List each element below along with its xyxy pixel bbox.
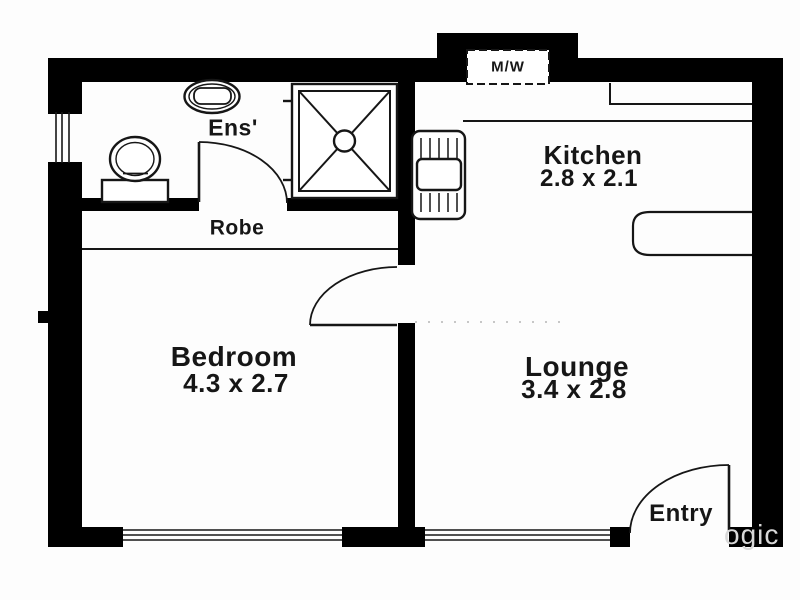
window-lounge bbox=[425, 530, 610, 540]
bedroom-door bbox=[310, 267, 397, 325]
lounge-dimensions: 3.4 x 2.8 bbox=[521, 376, 627, 402]
bedroom-dimensions: 4.3 x 2.7 bbox=[183, 370, 289, 396]
kitchen-bench-seat bbox=[633, 212, 752, 255]
wall-left-upper bbox=[48, 58, 82, 114]
wall-bottom-3 bbox=[610, 527, 630, 547]
kitchen-dimensions: 2.8 x 2.1 bbox=[540, 167, 638, 191]
wall-left-lower bbox=[48, 162, 82, 547]
window-bedroom bbox=[123, 530, 342, 540]
bedroom-label: Bedroom bbox=[171, 343, 297, 371]
ensuite-label: Ens' bbox=[208, 117, 258, 140]
shower-icon bbox=[283, 84, 397, 198]
wall-tick-left bbox=[38, 311, 50, 323]
entry-label: Entry bbox=[649, 502, 713, 526]
kitchen-counter bbox=[610, 83, 752, 104]
basin-icon bbox=[185, 80, 240, 113]
wall-bottom-2 bbox=[342, 527, 425, 547]
wall-right bbox=[752, 58, 783, 547]
floor-plan: Ens' Robe Kitchen 2.8 x 2.1 Bedroom 4.3 … bbox=[0, 0, 800, 600]
kitchen-sink-icon bbox=[412, 131, 465, 219]
toilet-icon bbox=[102, 137, 168, 202]
wall-top bbox=[48, 58, 783, 82]
window-left bbox=[56, 112, 69, 163]
wall-bottom-1 bbox=[48, 527, 123, 547]
ensuite-door bbox=[199, 142, 287, 203]
wall-middle-lower bbox=[398, 323, 415, 527]
microwave-label: M/W bbox=[491, 60, 525, 75]
watermark-text: ogic bbox=[724, 519, 779, 551]
robe-label: Robe bbox=[210, 218, 265, 239]
wall-ensuite-2 bbox=[287, 198, 415, 211]
shower-drain bbox=[334, 131, 355, 152]
